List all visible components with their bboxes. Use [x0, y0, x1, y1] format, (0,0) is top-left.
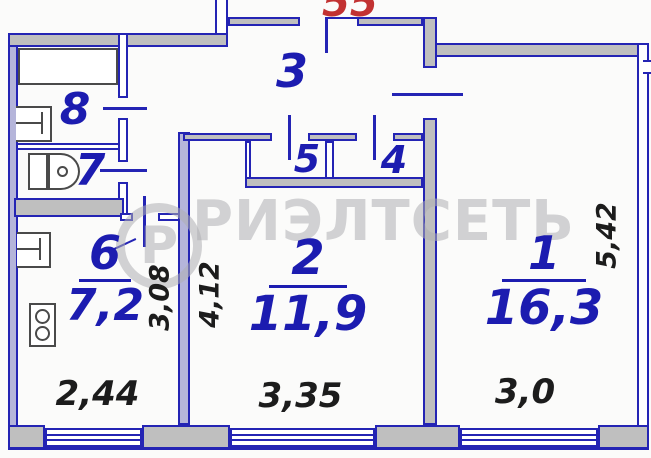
- bathtub-icon: [18, 48, 118, 85]
- wall-entrance-left: [228, 17, 300, 26]
- dimension-kitchen-depth: 3,08: [147, 248, 174, 348]
- stove-icon: [35, 326, 50, 341]
- kitchen-sink-icon: [39, 238, 41, 260]
- room-6-number: 6: [89, 230, 121, 276]
- wall-closet5-left: [245, 141, 251, 181]
- bath-sink-icon: [41, 112, 43, 134]
- wall-bottom-baseline: [8, 447, 649, 450]
- bath-sink-icon: [16, 122, 42, 124]
- dimension-room2-width: 3,35: [243, 379, 358, 413]
- window-room1: [460, 428, 598, 447]
- room-2-number: 2: [291, 234, 324, 282]
- wall-hall-room2: [183, 133, 272, 141]
- bath-sink-icon: [16, 106, 52, 142]
- wall-room1-top: [430, 43, 649, 57]
- dimension-room1-width: 3,0: [475, 375, 575, 409]
- wall-room1-left-lower: [423, 118, 437, 425]
- room-4-label: 4: [374, 141, 414, 179]
- door-room1-line: [392, 93, 463, 96]
- room-6-label: 6 7,2: [60, 230, 150, 328]
- room-8-label: 8: [50, 88, 100, 132]
- room-5-label: 5: [287, 140, 327, 178]
- wall-outer-right: [637, 43, 649, 428]
- wall-bath-right: [118, 33, 128, 98]
- wall-room1-left-upper: [423, 17, 437, 68]
- room-7-label: 7: [65, 149, 115, 193]
- wall-right-stub: [643, 60, 651, 74]
- door-bath-line: [103, 107, 147, 110]
- wall-bath-right: [118, 118, 128, 162]
- room-1-number: 1: [528, 230, 560, 276]
- kitchen-sink-icon: [17, 232, 51, 268]
- apartment-number: 55: [322, 0, 378, 23]
- wall-below-wc: [14, 198, 124, 217]
- window-kitchen: [45, 428, 142, 447]
- room-3-label: 3: [267, 48, 317, 94]
- room-2-label: 2 11,9: [252, 234, 364, 338]
- room-1-label: 1 16,3: [488, 230, 600, 332]
- dimension-room2-depth: 4,12: [197, 245, 224, 345]
- wall-entry-stub: [215, 0, 228, 35]
- floor-plan: Р РИЭЛТСЕТЬ 55 8 7 3 5 4 6 7,2 2 11,9 1 …: [0, 0, 651, 458]
- room-1-area: 16,3: [485, 284, 603, 332]
- stove-icon: [35, 309, 50, 324]
- window-room2: [230, 428, 375, 447]
- dimension-kitchen-width: 2,44: [40, 377, 155, 411]
- room-2-area: 11,9: [249, 290, 367, 338]
- room-6-area: 7,2: [66, 284, 144, 328]
- toilet-icon: [28, 153, 48, 190]
- kitchen-sink-icon: [17, 248, 41, 250]
